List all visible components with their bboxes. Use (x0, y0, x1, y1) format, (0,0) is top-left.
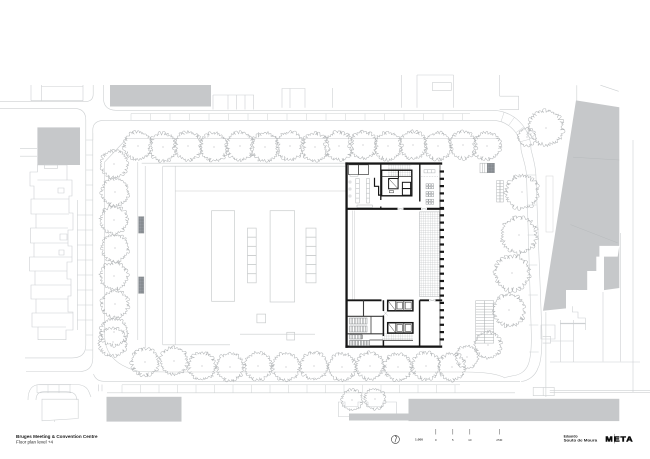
svg-text:0: 0 (435, 438, 437, 442)
svg-text:5: 5 (452, 438, 454, 442)
svg-text:Souto de Moura: Souto de Moura (564, 439, 598, 443)
svg-text:1:500: 1:500 (415, 437, 423, 441)
svg-text:META: META (605, 436, 633, 443)
svg-text:10: 10 (468, 438, 472, 442)
svg-text:25M: 25M (496, 438, 502, 442)
svg-text:Bruges Meeting & Convention Ce: Bruges Meeting & Convention Centre (16, 434, 98, 439)
svg-text:Floor plan level +4: Floor plan level +4 (16, 439, 54, 444)
